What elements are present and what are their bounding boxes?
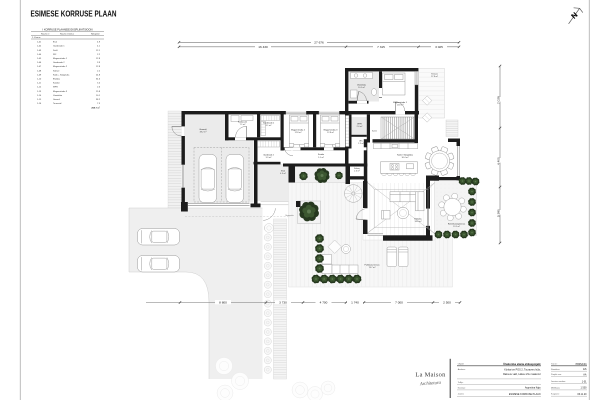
svg-text:La Maison: La Maison xyxy=(415,372,446,379)
svg-text:2.3 m²: 2.3 m² xyxy=(354,170,360,173)
svg-text:74.7 m²: 74.7 m² xyxy=(369,266,376,269)
svg-text:34.6 m²: 34.6 m² xyxy=(415,220,422,223)
svg-text:AA: AA xyxy=(583,373,587,376)
svg-text:Vannituba: Vannituba xyxy=(357,84,367,87)
svg-text:Objekt:: Objekt: xyxy=(458,363,465,366)
svg-text:Joonis:: Joonis: xyxy=(458,394,465,396)
svg-text:PR05A/04: PR05A/04 xyxy=(576,363,588,366)
svg-text:Vannituba: Vannituba xyxy=(53,94,63,97)
svg-text:I KORRUSE PLAANIDE EKSPLIKATSI: I KORRUSE PLAANIDE EKSPLIKATSIOON xyxy=(43,28,93,32)
svg-text:4 400: 4 400 xyxy=(497,157,501,165)
svg-text:Elutuba: Elutuba xyxy=(414,218,422,221)
svg-text:Hommikusöögiterrass: Hommikusöögiterrass xyxy=(448,223,465,226)
svg-text:16 430: 16 430 xyxy=(258,45,268,49)
svg-text:1 740: 1 740 xyxy=(351,301,359,305)
svg-text:Argentina Kaja: Argentina Kaja xyxy=(525,387,541,390)
svg-text:4 700: 4 700 xyxy=(320,301,328,305)
svg-text:06.11.20: 06.11.20 xyxy=(577,393,587,396)
svg-text:2.2 m²: 2.2 m² xyxy=(358,142,364,145)
svg-text:Künka tee POS 2, Tuuraveru kül: Künka tee POS 2, Tuuraveru küla, xyxy=(504,368,541,371)
svg-text:Terrassid: Terrassid xyxy=(53,102,61,105)
svg-text:7 000: 7 000 xyxy=(395,301,403,305)
svg-text:Rakvere vald, Lääne-Viru maako: Rakvere vald, Lääne-Viru maakond xyxy=(503,373,541,376)
svg-text:Ruumi nr: Ruumi nr xyxy=(41,32,50,35)
svg-text:7.1 m²: 7.1 m² xyxy=(240,123,246,126)
svg-text:7 028: 7 028 xyxy=(497,96,501,104)
svg-text:5 380: 5 380 xyxy=(497,209,501,217)
svg-text:Koridor: Koridor xyxy=(318,153,324,156)
svg-text:10.1 m²: 10.1 m² xyxy=(358,86,365,89)
svg-text:3.9 m²: 3.9 m² xyxy=(266,156,272,159)
svg-text:Magamistuba 2: Magamistuba 2 xyxy=(53,65,68,68)
svg-text:Magamistuba 3: Magamistuba 3 xyxy=(53,90,68,93)
svg-text:Koostas:: Koostas: xyxy=(458,386,466,389)
svg-text:4.9 m²: 4.9 m² xyxy=(280,172,286,175)
svg-text:12.8 m²: 12.8 m² xyxy=(295,131,302,134)
svg-text:Elutuba: Elutuba xyxy=(53,78,61,81)
svg-text:Koridor: Koridor xyxy=(53,82,60,85)
svg-text:27.8 m²: 27.8 m² xyxy=(431,75,438,78)
svg-text:13.1 m²: 13.1 m² xyxy=(453,225,460,228)
svg-text:ESIMESE KORRUSE PLAAN: ESIMESE KORRUSE PLAAN xyxy=(509,393,541,396)
svg-text:Netopind: Netopind xyxy=(91,32,100,35)
svg-text:Dušš: Dušš xyxy=(53,50,58,52)
svg-text:3 730: 3 730 xyxy=(279,301,287,305)
svg-text:12.8 m²: 12.8 m² xyxy=(327,131,334,134)
svg-text:Kuupäev:: Kuupäev: xyxy=(551,394,560,396)
svg-text:5.1 m²: 5.1 m² xyxy=(318,156,324,159)
svg-text:Puhkeala terrass: Puhkeala terrass xyxy=(364,263,379,266)
svg-text:Magamistuba 3: Magamistuba 3 xyxy=(324,129,339,132)
svg-text:Aadress:: Aadress: xyxy=(458,368,466,371)
svg-text:Ruumi nimetus: Ruumi nimetus xyxy=(60,32,74,35)
svg-text:ES: ES xyxy=(583,368,587,371)
svg-text:WC: WC xyxy=(53,54,57,56)
svg-text:Köök + Söögituba: Köök + Söögituba xyxy=(53,73,70,76)
svg-text:Magamistuba 1: Magamistuba 1 xyxy=(53,57,68,60)
svg-text:3 025: 3 025 xyxy=(435,45,443,49)
svg-text:Garderoob 2: Garderoob 2 xyxy=(263,154,274,157)
svg-text:Joonise number:: Joonise number: xyxy=(551,381,566,383)
svg-text:2.6 m²: 2.6 m² xyxy=(357,125,363,128)
svg-text:ESIMESE KORRUSE PLAAN: ESIMESE KORRUSE PLAAN xyxy=(31,10,117,19)
svg-text:1-01: 1-01 xyxy=(582,380,587,383)
svg-text:Projekt osa:: Projekt osa: xyxy=(551,373,562,376)
svg-text:Tellija:: Tellija: xyxy=(458,382,464,384)
svg-text:1 500: 1 500 xyxy=(581,387,588,390)
svg-text:27 676: 27 676 xyxy=(314,40,324,44)
svg-text:Mõõtkava:: Mõõtkava: xyxy=(551,386,561,389)
svg-text:1. Korrus: 1. Korrus xyxy=(32,36,40,39)
svg-text:Kamin: Kamin xyxy=(372,131,377,133)
svg-text:Magamistuba 2: Magamistuba 2 xyxy=(291,129,306,132)
svg-text:WPR: WPR xyxy=(53,87,58,89)
svg-text:Töö nr:: Töö nr: xyxy=(551,364,558,366)
svg-text:8 800: 8 800 xyxy=(219,301,227,305)
svg-text:Garaaž: Garaaž xyxy=(53,98,60,101)
svg-text:Staadium:: Staadium: xyxy=(551,368,560,371)
svg-text:38.2 m²: 38.2 m² xyxy=(200,131,207,134)
svg-text:Köök / Söögituba: Köök / Söögituba xyxy=(397,154,414,157)
svg-text:12.8 m²: 12.8 m² xyxy=(397,104,404,107)
svg-text:Sissepääs: Sissepääs xyxy=(285,215,293,217)
svg-text:Sahver: Sahver xyxy=(53,69,60,72)
svg-text:Ühekordse elamu ehitusprojekt: Ühekordse elamu ehitusprojekt xyxy=(503,363,540,366)
svg-text:Garderoob 2: Garderoob 2 xyxy=(53,61,65,64)
svg-text:30.4 m²: 30.4 m² xyxy=(402,156,409,159)
svg-text:Magamistuba 1: Magamistuba 1 xyxy=(393,101,408,104)
svg-text:2 500: 2 500 xyxy=(443,301,451,305)
svg-text:Garaaž: Garaaž xyxy=(199,128,206,131)
svg-text:4.1 m²: 4.1 m² xyxy=(266,124,272,127)
svg-text:208.7 m²: 208.7 m² xyxy=(91,107,100,110)
svg-text:Garderoob 1: Garderoob 1 xyxy=(53,45,65,48)
svg-text:Katlaruum: Katlaruum xyxy=(238,121,247,124)
svg-text:7 315: 7 315 xyxy=(377,45,385,49)
